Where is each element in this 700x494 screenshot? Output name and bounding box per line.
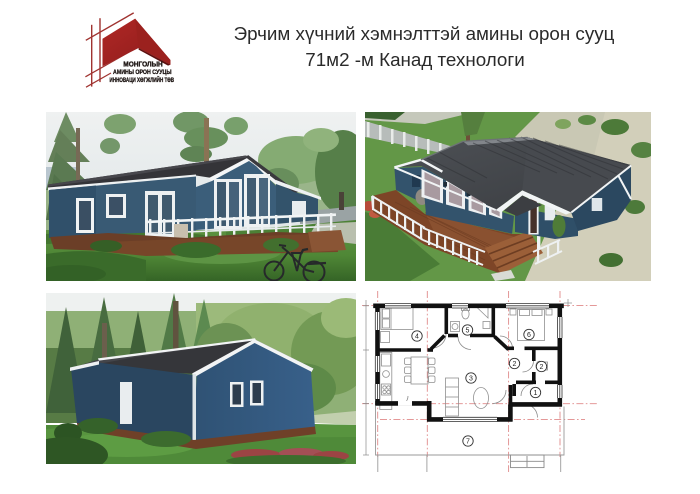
svg-text:7: 7 [466,439,470,446]
svg-text:4: 4 [415,334,419,341]
svg-text:6: 6 [527,332,531,339]
svg-text:1: 1 [534,390,538,397]
svg-text:5: 5 [466,328,470,335]
svg-text:ИННОВАЦИ ХӨГЖЛИЙН ТӨВ: ИННОВАЦИ ХӨГЖЛИЙН ТӨВ [110,76,175,84]
svg-text:2: 2 [540,364,544,371]
svg-text:3: 3 [469,376,473,383]
svg-text:2: 2 [513,361,517,368]
